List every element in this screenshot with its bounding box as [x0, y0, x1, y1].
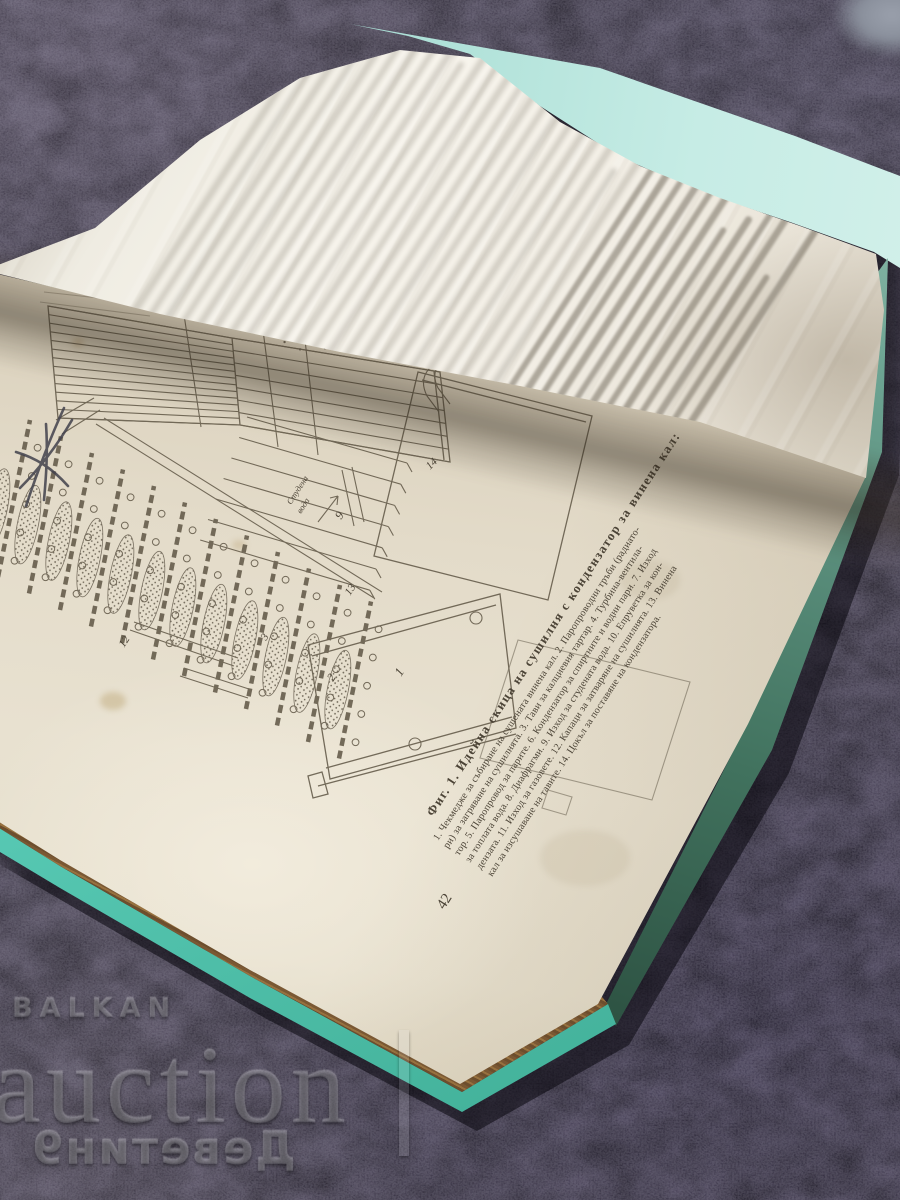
diagram-line — [407, 463, 412, 472]
tray-roller — [189, 527, 196, 534]
tray-roller — [96, 477, 103, 484]
diagram-line — [208, 520, 376, 570]
photo-open-book: 1 2 3 9 12 13 14 Студена вода Фиг. 1. Ид… — [0, 0, 900, 1200]
diagram-line — [395, 505, 400, 514]
tray-roller — [183, 555, 190, 562]
tray-roller — [338, 638, 345, 645]
tray-roller — [214, 572, 221, 579]
label-12: 12 — [116, 633, 132, 649]
tray-roller — [59, 489, 66, 496]
tray-roller — [352, 739, 359, 746]
tray-roller — [152, 539, 159, 546]
drawer-roller — [470, 612, 482, 624]
diagram-line — [388, 527, 393, 536]
tray-roller — [282, 576, 289, 583]
figure-caption-line: дензата. 11. Изход за газовете. 12. Капа… — [474, 563, 680, 871]
tray-roller — [276, 605, 283, 612]
tray-roller — [313, 593, 320, 600]
diagram-line — [231, 458, 394, 505]
tray-roller — [65, 461, 72, 468]
diagram-line — [401, 484, 406, 493]
label-13: 13 — [342, 581, 358, 597]
diagram-line — [382, 548, 387, 557]
tray-roller — [90, 506, 97, 513]
tray-roller — [344, 609, 351, 616]
tray-roller — [34, 444, 41, 451]
watermark-bar — [399, 1030, 409, 1156]
watermark-devetin9: Деветин9 — [30, 1122, 296, 1175]
tray-roller — [307, 621, 314, 628]
tray-roller — [364, 682, 371, 689]
page-number: 42 — [434, 891, 456, 912]
tray-roller — [121, 522, 128, 529]
tray-roller — [158, 510, 165, 517]
diagram-line — [376, 569, 381, 578]
tray-roller — [358, 711, 365, 718]
tray-roller — [245, 588, 252, 595]
tray-roller — [251, 560, 258, 567]
figure-caption-line: тор. 5. Паропровод за парите. 6. Конденз… — [452, 546, 659, 857]
label-1: 1 — [391, 665, 407, 679]
tray-roller — [369, 654, 376, 661]
watermark-balkan: BALKAN — [12, 993, 177, 1024]
label-9: 9 — [332, 509, 347, 522]
tray-roller — [127, 494, 134, 501]
